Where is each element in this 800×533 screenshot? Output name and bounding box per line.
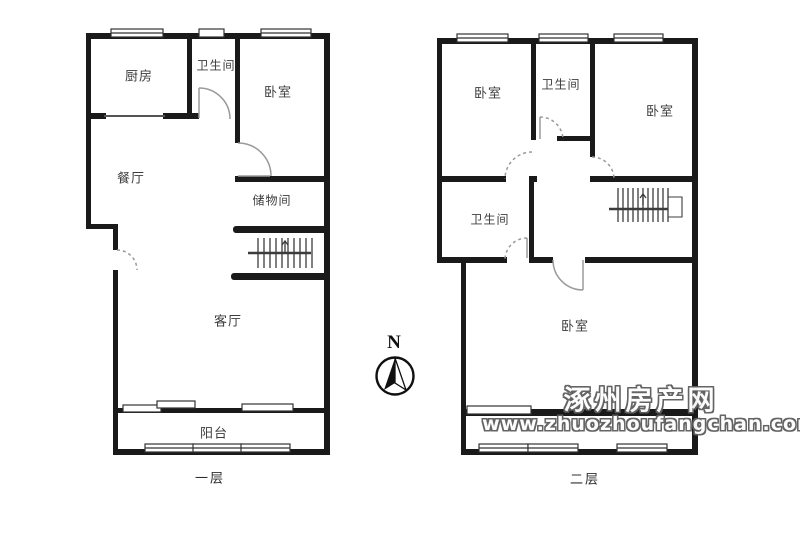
room-label-living: 客厅 [214,311,242,330]
room-label-bathroom-top-f2: 卫生间 [541,76,580,93]
watermark-site-name: 涿州房产网 [564,379,719,418]
f2-bed1-door-arc [505,152,532,179]
f1-wall-kitchen-bath [187,33,192,119]
f2-wall-bedroom-left [461,257,466,453]
f1-wall-bedroom-left [235,33,240,143]
watermark-site-url: www.zhuozhoufangchan.com [482,413,800,435]
room-label-bedroom-left-f2: 卧室 [474,83,502,102]
f1-living-window-1 [123,405,161,412]
f2-stair-direction-arrow [640,194,646,205]
f1-wall-kitchen-bottom-left [88,113,106,119]
f2-bath2-door-arc [505,238,527,260]
f2-wall-middle-left [437,176,506,182]
room-label-bedroom-f1: 卧室 [264,82,292,101]
f2-stair-landing [668,197,682,217]
f2-bed2-door-arc [592,157,614,179]
f1-living-window-2 [157,401,195,408]
room-label-balcony: 阳台 [200,423,228,442]
f1-bedroom-door-arc [238,143,271,176]
room-label-bedroom-main-f2: 卧室 [561,316,589,335]
f1-wall-entry-stub [113,229,118,250]
room-label-bathroom-mid-f2: 卫生间 [470,211,509,228]
f1-bathroom-window [199,29,224,37]
floor1-title: 一层 [195,468,225,487]
f1-living-window-3 [242,404,293,411]
f1-stair-direction-arrow [282,241,288,252]
room-label-dining: 餐厅 [117,168,145,187]
room-label-bedroom-right-f2: 卧室 [646,101,674,120]
f2-bedroom-door-arc [553,260,583,290]
f2-stairs [609,188,682,222]
f2-wall-bed1-bath1 [531,38,536,140]
f1-wall-storage-bottom [233,226,330,233]
f1-bathroom-door-arc [199,88,230,119]
north-compass [377,358,414,395]
f2-wall-hall-bottom-right [585,257,698,263]
compass-arrow-right [395,358,406,390]
f1-wall-left-upper [86,33,91,228]
f1-entry-door-arc [117,250,137,270]
first-floor-plan [86,29,330,455]
f1-wall-step [86,224,118,229]
floorplan-linework [0,0,800,533]
f2-doors [505,117,614,290]
f1-wall-storage-top [235,176,330,182]
f1-wall-right [324,33,330,455]
f2-wall-bath1-bed2 [590,38,595,157]
floorplan-image: N 厨房 卫生间 卧室 餐厅 储物间 客厅 阳台 一层 卧室 卫生间 卧室 卫生… [0,0,800,533]
f2-wall-left [437,38,442,259]
f2-wall-middle-right [590,176,698,182]
compass-arrow-left [384,358,395,390]
compass-north-label: N [387,332,401,354]
floor2-title: 二层 [570,469,600,488]
f1-stairs [248,238,312,268]
room-label-storage: 储物间 [252,192,291,209]
f1-wall-left-lower [113,270,118,455]
f2-wall-bath-bottom [437,257,507,263]
room-label-kitchen: 厨房 [125,66,153,85]
room-label-bathroom-f1: 卫生间 [196,57,235,74]
f1-wall-stair-lower [231,273,330,280]
f1-wall-kitchen-bottom-right [163,113,199,119]
f2-wall-bath2-right [529,176,534,262]
f2-wall-hall-bottom-left [529,257,553,263]
